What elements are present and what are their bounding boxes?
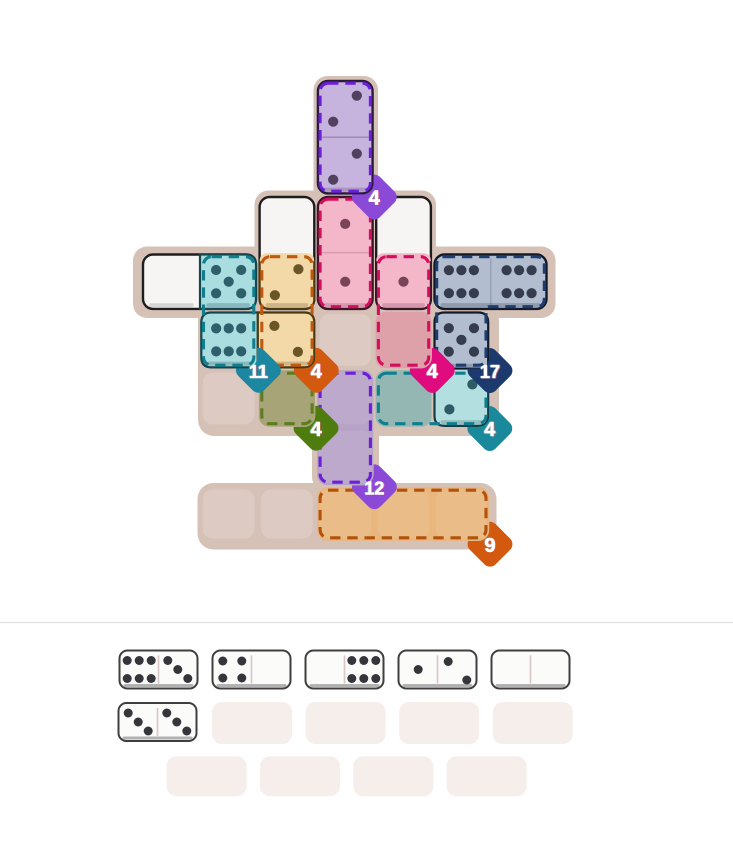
- svg-text:17: 17: [480, 362, 500, 382]
- svg-text:11: 11: [249, 362, 268, 382]
- svg-text:4: 4: [311, 361, 323, 383]
- svg-text:4: 4: [369, 188, 381, 210]
- svg-text:12: 12: [364, 478, 384, 498]
- svg-text:4: 4: [427, 361, 439, 383]
- svg-text:4: 4: [310, 419, 322, 441]
- svg-text:4: 4: [484, 419, 496, 441]
- svg-text:9: 9: [484, 535, 495, 557]
